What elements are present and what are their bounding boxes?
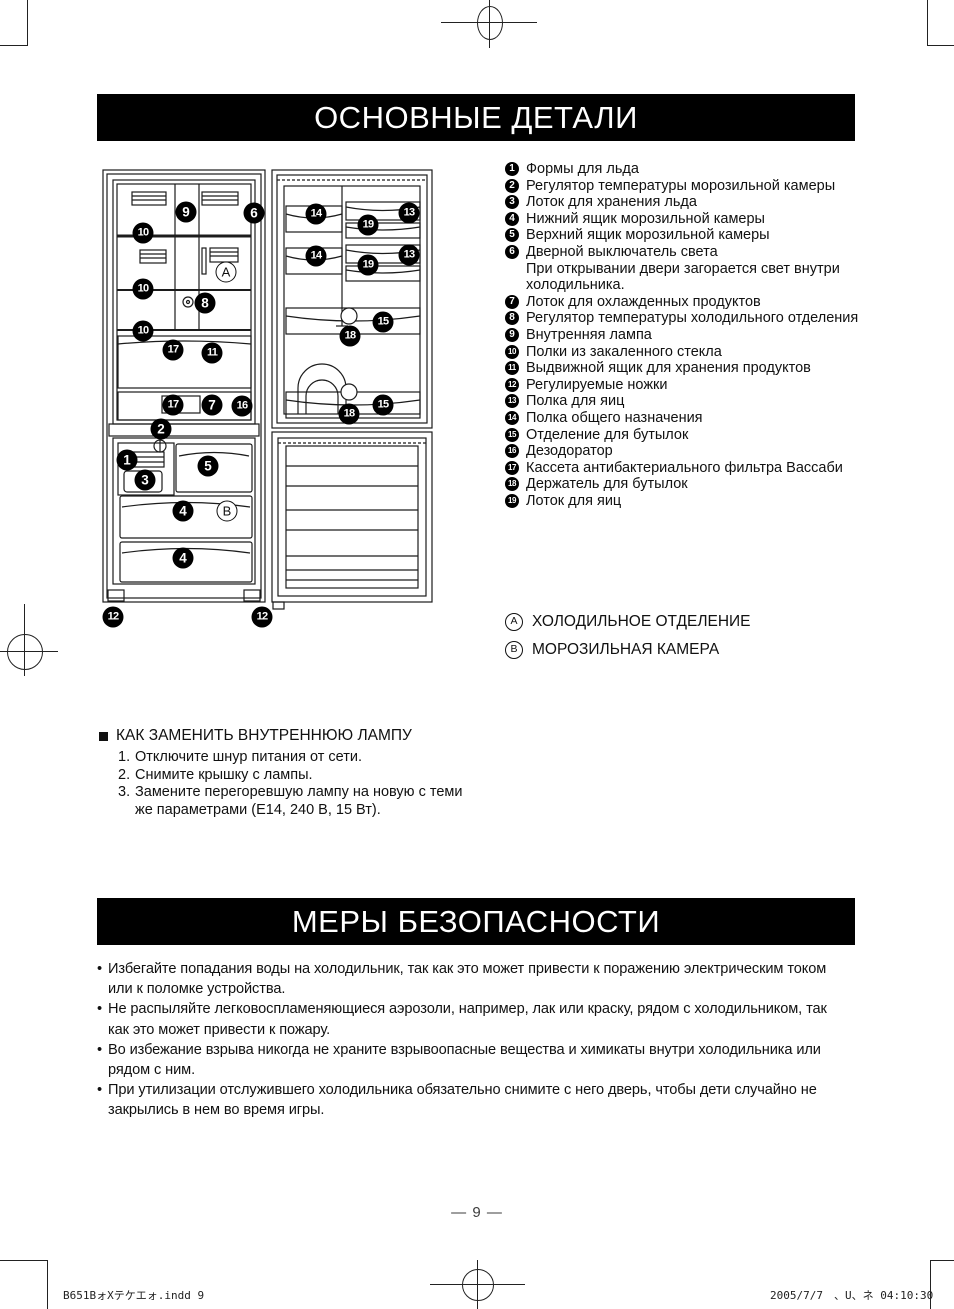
part-label: Верхний ящик морозильной камеры: [526, 227, 770, 244]
callout-number: 14: [311, 209, 322, 220]
diagram-callout: 13: [399, 203, 420, 224]
diagram-callout: 18: [339, 404, 360, 425]
diagram-callout: 15: [373, 312, 394, 333]
safety-item: •Во избежание взрыва никогда не храните …: [97, 1040, 850, 1080]
lamp-step: 2.Снимите крышку с лампы.: [118, 767, 483, 785]
diagram-callout: 15: [373, 395, 394, 416]
part-label: Выдвижной ящик для хранения продуктов: [526, 360, 811, 377]
callout-number: 10: [138, 326, 149, 337]
step-number: 2.: [118, 767, 135, 785]
callout-number: 5: [204, 459, 212, 473]
diagram-callout: 14: [306, 246, 327, 267]
part-number-badge: 19: [505, 494, 519, 508]
callout-number: 17: [168, 345, 179, 356]
parts-list-item: 19 Лоток для яиц: [505, 493, 858, 510]
callout-number: 2: [157, 422, 165, 436]
part-label: Полка общего назначения: [526, 410, 703, 427]
safety-title: МЕРЫ БЕЗОПАСНОСТИ: [292, 904, 660, 940]
diagram-callout: 13: [399, 245, 420, 266]
diagram-callout: 10: [133, 279, 154, 300]
part-number-badge: 15: [505, 428, 519, 442]
callout-number: 12: [108, 612, 119, 623]
callout-number: 13: [404, 208, 415, 219]
parts-list-item: 15 Отделение для бутылок: [505, 427, 858, 444]
parts-list-item: 9 Внутренняя лампа: [505, 327, 858, 344]
part-number-badge: 3: [505, 195, 519, 209]
step-text: Снимите крышку с лампы.: [135, 767, 313, 783]
part-number-badge: 8: [505, 311, 519, 325]
callout-number: 11: [207, 348, 217, 359]
lamp-step: 3.Замените перегоревшую лампу на новую с…: [118, 784, 483, 819]
part-note: При открывании двери загорается свет вну…: [526, 261, 856, 294]
part-label: Лоток для хранения льда: [526, 194, 697, 211]
step-text: Замените перегоревшую лампу на новую с т…: [135, 784, 462, 818]
callout-number: 15: [378, 317, 389, 328]
safety-text: Не распыляйте легковоспламеняющиеся аэро…: [108, 1001, 827, 1037]
safety-list: •Избегайте попадания воды на холодильник…: [97, 959, 850, 1121]
footer-filename: B651BォXテケエォ.indd 9: [63, 1287, 204, 1303]
part-number-badge: 17: [505, 461, 519, 475]
part-label: Дезодоратор: [526, 443, 613, 460]
part-number-badge: 2: [505, 179, 519, 193]
callout-number: 6: [250, 206, 258, 220]
callout-number: 18: [344, 409, 355, 420]
diagram-callout: 1: [117, 450, 138, 471]
legend-label: МОРОЗИЛЬНАЯ КАМЕРА: [532, 641, 719, 659]
diagram-callout: 18: [340, 326, 361, 347]
part-number-badge: 16: [505, 444, 519, 458]
bullet-icon: •: [97, 1080, 108, 1100]
lamp-title: КАК ЗАМЕНИТЬ ВНУТРЕННЮЮ ЛАМПУ: [116, 727, 412, 745]
parts-title: ОСНОВНЫЕ ДЕТАЛИ: [314, 100, 638, 136]
part-number-badge: 6: [505, 245, 519, 259]
diagram-callout: 14: [306, 204, 327, 225]
lamp-section: КАК ЗАМЕНИТЬ ВНУТРЕННЮЮ ЛАМПУ 1.Отключит…: [99, 727, 499, 819]
diagram-callout: 3: [135, 470, 156, 491]
callout-number: 4: [179, 551, 187, 565]
parts-list-item: 16 Дезодоратор: [505, 443, 858, 460]
callout-number: 16: [237, 401, 248, 412]
safety-item: •Не распыляйте легковоспламеняющиеся аэр…: [97, 999, 850, 1039]
part-label: Лоток для охлажденных продуктов: [526, 294, 761, 311]
safety-text: Избегайте попадания воды на холодильник,…: [108, 961, 826, 997]
part-number-badge: 12: [505, 378, 519, 392]
part-label: Регулятор температуры морозильной камеры: [526, 178, 835, 195]
callout-number: 18: [345, 331, 356, 342]
callout-number: 15: [378, 400, 389, 411]
safety-text: Во избежание взрыва никогда не храните в…: [108, 1042, 821, 1078]
parts-list-item: 17 Кассета антибактериального фильтра Ва…: [505, 460, 858, 477]
part-number-badge: 5: [505, 228, 519, 242]
square-bullet-icon: [99, 732, 108, 741]
diagram-callout: 8: [195, 293, 216, 314]
footer-timestamp: 2005/7/7 、U、ネ 04:10:30: [770, 1287, 933, 1303]
parts-list-item: 10 Полки из закаленного стекла: [505, 344, 858, 361]
lamp-steps: 1.Отключите шнур питания от сети. 2.Сним…: [118, 749, 483, 819]
parts-list-item: 8 Регулятор температуры холодильного отд…: [505, 310, 858, 327]
diagram-callout: 10: [133, 321, 154, 342]
part-label: Полка для яиц: [526, 393, 624, 410]
callout-number: 19: [363, 220, 374, 231]
callout-number: 10: [138, 284, 149, 295]
bullet-icon: •: [97, 959, 108, 979]
diagram-callout: 12: [103, 607, 124, 628]
diagram-callout: 11: [202, 343, 223, 364]
diagram-callout: 7: [202, 395, 223, 416]
part-number-badge: 1: [505, 162, 519, 176]
legend-row: A ХОЛОДИЛЬНОЕ ОТДЕЛЕНИЕ: [505, 612, 751, 631]
part-label: Регулируемые ножки: [526, 377, 667, 394]
legend-letter-icon: A: [505, 613, 523, 631]
part-label: Внутренняя лампа: [526, 327, 652, 344]
part-label: Держатель для бутылок: [526, 476, 688, 493]
diagram-callout: 4: [173, 501, 194, 522]
part-label: Отделение для бутылок: [526, 427, 688, 444]
callout-number: 12: [257, 612, 268, 623]
section-header-safety: МЕРЫ БЕЗОПАСНОСТИ: [97, 898, 855, 945]
part-label: Дверной выключатель света: [526, 244, 856, 261]
diagram-callout: 17: [163, 340, 184, 361]
parts-list-item: 12 Регулируемые ножки: [505, 377, 858, 394]
step-number: 1.: [118, 749, 135, 767]
legend-letter-icon: B: [505, 641, 523, 659]
callout-number: A: [222, 266, 231, 279]
callout-number: 4: [179, 504, 187, 518]
page-number: — 9 —: [0, 1204, 954, 1221]
part-label: Нижний ящик морозильной камеры: [526, 211, 765, 228]
lamp-step: 1.Отключите шнур питания от сети.: [118, 749, 483, 767]
parts-list-item: 4 Нижний ящик морозильной камеры: [505, 211, 858, 228]
diagram-callout: 16: [232, 396, 253, 417]
parts-list-item: 3 Лоток для хранения льда: [505, 194, 858, 211]
parts-list-item: 1 Формы для льда: [505, 161, 858, 178]
diagram-callout: 4: [173, 548, 194, 569]
diagram-callout: 19: [358, 215, 379, 236]
safety-item: •Избегайте попадания воды на холодильник…: [97, 959, 850, 999]
part-number-badge: 13: [505, 394, 519, 408]
legend-row: B МОРОЗИЛЬНАЯ КАМЕРА: [505, 640, 751, 659]
diagram-callout: 2: [151, 419, 172, 440]
manual-page: ОСНОВНЫЕ ДЕТАЛИ: [0, 0, 954, 1309]
parts-list: 1 Формы для льда 2 Регулятор температуры…: [505, 161, 858, 509]
diagram-callout: 9: [176, 202, 197, 223]
part-label: Кассета антибактериального фильтра Васса…: [526, 460, 843, 477]
parts-list-item: 11 Выдвижной ящик для хранения продуктов: [505, 360, 858, 377]
diagram-callout: 19: [358, 255, 379, 276]
callout-number: 10: [138, 228, 149, 239]
bullet-icon: •: [97, 999, 108, 1019]
part-label: Лоток для яиц: [526, 493, 621, 510]
callout-number: 7: [208, 398, 216, 412]
step-text: Отключите шнур питания от сети.: [135, 749, 362, 765]
legend-label: ХОЛОДИЛЬНОЕ ОТДЕЛЕНИЕ: [532, 613, 751, 631]
part-label: Полки из закаленного стекла: [526, 344, 722, 361]
parts-list-item: 18 Держатель для бутылок: [505, 476, 858, 493]
safety-text: При утилизации отслужившего холодильника…: [108, 1082, 817, 1118]
part-number-badge: 18: [505, 477, 519, 491]
part-number-badge: 4: [505, 212, 519, 226]
diagram-callout: 10: [133, 223, 154, 244]
safety-item: •При утилизации отслужившего холодильник…: [97, 1080, 850, 1120]
part-number-badge: 7: [505, 295, 519, 309]
parts-list-item: 7 Лоток для охлажденных продуктов: [505, 294, 858, 311]
part-number-badge: 11: [505, 361, 519, 375]
callout-number: 3: [141, 473, 149, 487]
part-number-badge: 9: [505, 328, 519, 342]
diagram-callout: B: [217, 501, 238, 522]
callout-number: 17: [168, 400, 179, 411]
callout-number: 13: [404, 250, 415, 261]
callout-number: B: [223, 505, 232, 518]
callout-number: 1: [123, 453, 131, 467]
callout-number: 9: [182, 205, 190, 219]
diagram-callout: A: [216, 262, 237, 283]
part-label: Регулятор температуры холодильного отдел…: [526, 310, 858, 327]
step-number: 3.: [118, 784, 135, 802]
parts-list-item: 14 Полка общего назначения: [505, 410, 858, 427]
callout-number: 19: [363, 260, 374, 271]
section-header-parts: ОСНОВНЫЕ ДЕТАЛИ: [97, 94, 855, 141]
parts-list-item: 6 Дверной выключатель света При открыван…: [505, 244, 858, 294]
bullet-icon: •: [97, 1040, 108, 1060]
parts-list-item: 13 Полка для яиц: [505, 393, 858, 410]
parts-list-item: 2 Регулятор температуры морозильной каме…: [505, 178, 858, 195]
diagram-callout: 12: [252, 607, 273, 628]
callout-number: 14: [311, 251, 322, 262]
compartment-legend: A ХОЛОДИЛЬНОЕ ОТДЕЛЕНИЕ B МОРОЗИЛЬНАЯ КА…: [505, 612, 751, 668]
diagram-callout: 17: [163, 395, 184, 416]
diagram-callout: 6: [244, 203, 265, 224]
diagram-callout: 5: [198, 456, 219, 477]
callout-number: 8: [201, 296, 209, 310]
part-label: Формы для льда: [526, 161, 639, 178]
part-number-badge: 14: [505, 411, 519, 425]
parts-list-item: 5 Верхний ящик морозильной камеры: [505, 227, 858, 244]
part-number-badge: 10: [505, 345, 519, 359]
